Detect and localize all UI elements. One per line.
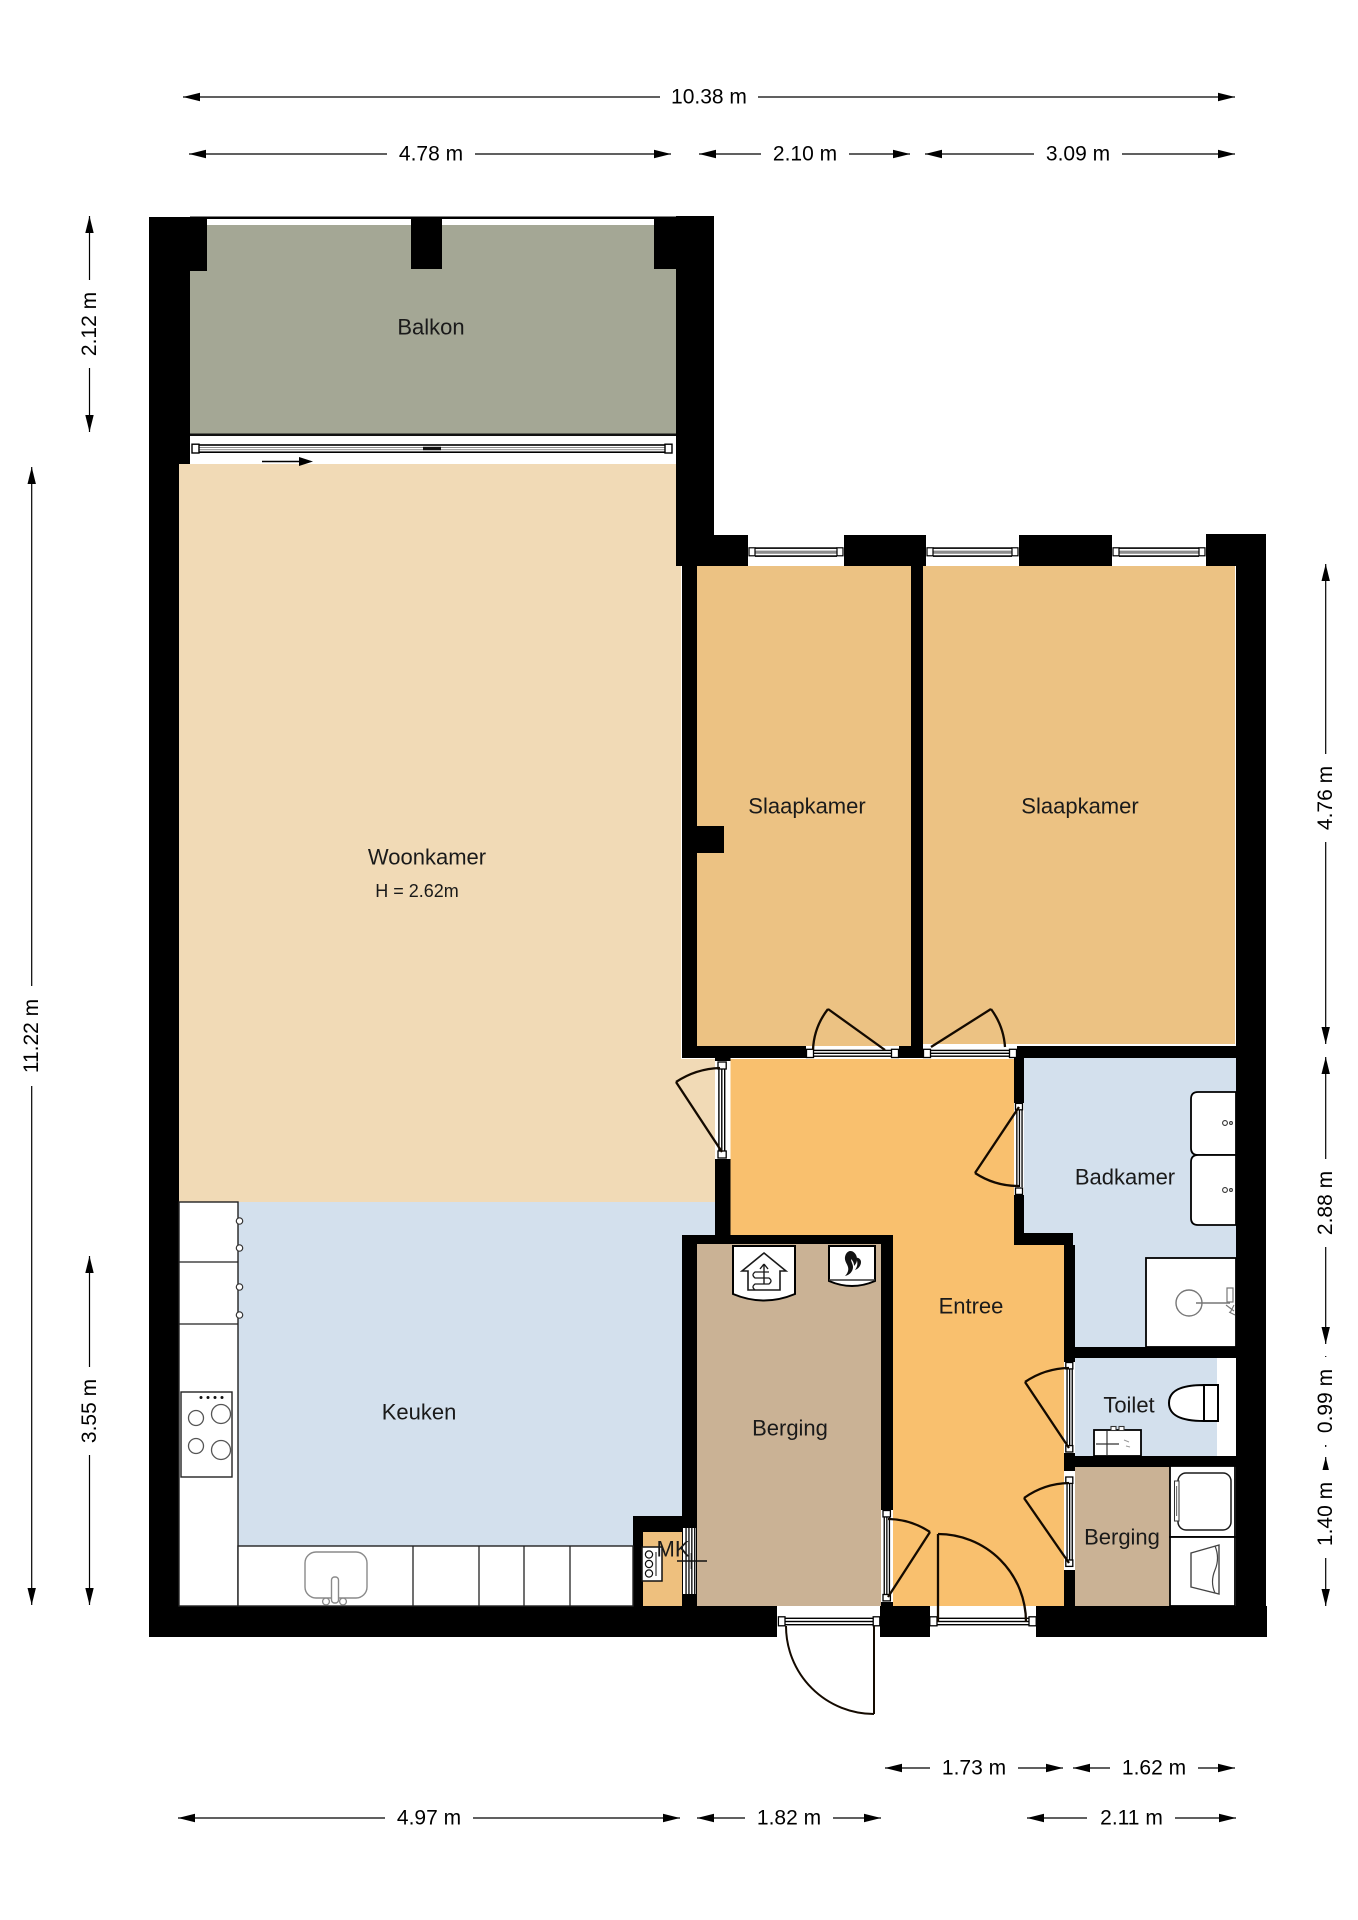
svg-text:Toilet: Toilet — [1103, 1393, 1154, 1418]
svg-text:Woonkamer: Woonkamer — [368, 845, 486, 870]
svg-text:1.73 m: 1.73 m — [942, 1757, 1006, 1780]
svg-text:Balkon: Balkon — [397, 315, 464, 340]
svg-text:2.88 m: 2.88 m — [1314, 1171, 1337, 1235]
svg-text:3.55 m: 3.55 m — [78, 1379, 101, 1443]
svg-text:Entree: Entree — [939, 1294, 1004, 1319]
svg-text:Badkamer: Badkamer — [1075, 1165, 1175, 1190]
svg-text:MK: MK — [657, 1537, 690, 1562]
svg-text:4.97 m: 4.97 m — [397, 1807, 461, 1830]
svg-text:1.40 m: 1.40 m — [1314, 1482, 1337, 1546]
svg-text:2.11 m: 2.11 m — [1100, 1807, 1163, 1830]
svg-text:1.82 m: 1.82 m — [757, 1807, 821, 1830]
svg-text:Slaapkamer: Slaapkamer — [1021, 794, 1138, 819]
svg-text:Slaapkamer: Slaapkamer — [748, 794, 865, 819]
svg-text:Berging: Berging — [752, 1416, 828, 1441]
svg-text:3.09 m: 3.09 m — [1046, 143, 1110, 166]
svg-text:1.62 m: 1.62 m — [1122, 1757, 1186, 1780]
svg-text:2.10 m: 2.10 m — [773, 143, 837, 166]
svg-text:0.99 m: 0.99 m — [1314, 1369, 1337, 1433]
svg-text:10.38 m: 10.38 m — [671, 86, 747, 109]
svg-text:H = 2.62m: H = 2.62m — [375, 881, 459, 901]
svg-text:Keuken: Keuken — [382, 1400, 457, 1425]
svg-text:11.22 m: 11.22 m — [20, 999, 43, 1073]
svg-text:2.12 m: 2.12 m — [78, 292, 101, 356]
svg-text:4.78 m: 4.78 m — [399, 143, 463, 166]
svg-text:4.76 m: 4.76 m — [1314, 766, 1337, 830]
svg-text:Berging: Berging — [1084, 1525, 1160, 1550]
